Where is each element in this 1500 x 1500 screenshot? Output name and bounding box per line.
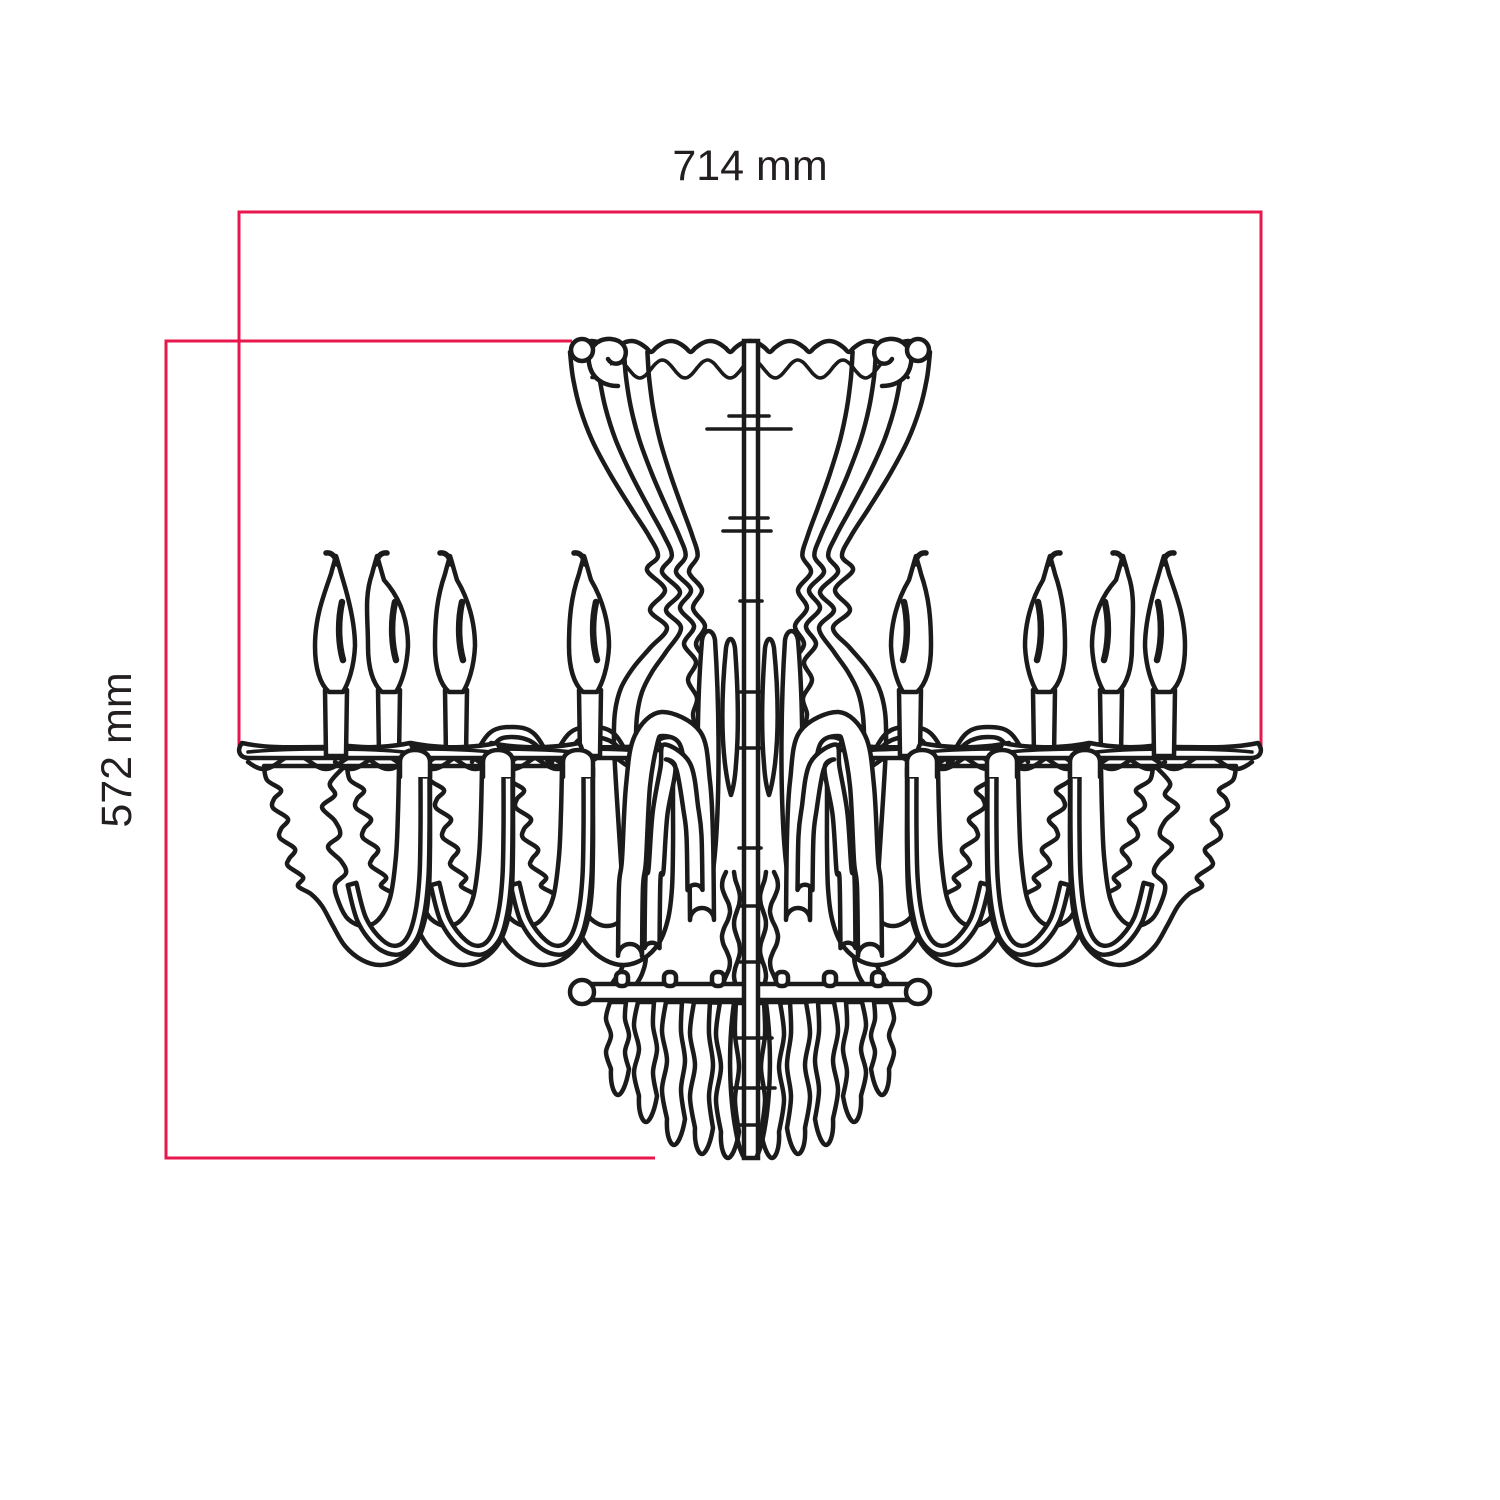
svg-text:572 mm: 572 mm: [93, 672, 141, 827]
svg-text:714 mm: 714 mm: [672, 142, 827, 190]
